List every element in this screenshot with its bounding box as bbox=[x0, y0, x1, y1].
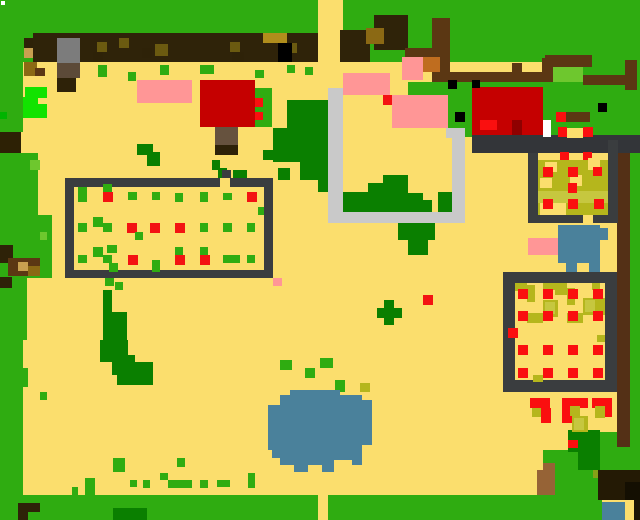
tree-branch bbox=[18, 262, 28, 271]
grass-tuft bbox=[320, 358, 333, 368]
grass-tuft bbox=[200, 480, 208, 488]
grass-tuft bbox=[217, 480, 230, 487]
grass-tuft bbox=[113, 458, 125, 472]
grass-tuft bbox=[168, 480, 192, 488]
grass-tuft bbox=[72, 487, 78, 495]
farmhouse-barn[interactable] bbox=[200, 80, 272, 156]
bush-large bbox=[103, 290, 112, 312]
hedge-gate[interactable] bbox=[553, 67, 583, 82]
grass-south bbox=[328, 495, 602, 520]
grass-south bbox=[0, 495, 318, 520]
log bbox=[18, 503, 40, 512]
tree-canopy bbox=[318, 162, 328, 192]
grass-tuft bbox=[143, 480, 150, 488]
pond[interactable] bbox=[268, 390, 372, 472]
crow bbox=[598, 103, 607, 112]
trellis-leaf bbox=[532, 408, 541, 417]
bright-grass-patch bbox=[23, 104, 47, 118]
tree-trunk bbox=[537, 470, 555, 495]
grass-tuft bbox=[305, 368, 315, 378]
southeast-structure bbox=[625, 482, 640, 500]
south-path[interactable] bbox=[315, 495, 331, 520]
roof-pink bbox=[137, 80, 192, 103]
water-trough bbox=[602, 502, 625, 520]
grass-tuft bbox=[177, 458, 185, 467]
east-fence bbox=[625, 60, 637, 90]
grass-tuft bbox=[248, 473, 255, 488]
burrow-hole bbox=[0, 132, 21, 153]
grass-tuft bbox=[105, 278, 114, 286]
trellis-leaf bbox=[595, 406, 605, 418]
bright-grass-dot bbox=[0, 112, 7, 119]
grass-east bbox=[630, 153, 640, 470]
tomato-trellis bbox=[530, 398, 550, 408]
dead-tree bbox=[366, 28, 384, 44]
east-fence-post bbox=[512, 63, 522, 72]
berry bbox=[583, 127, 593, 137]
berry-field-north[interactable] bbox=[528, 140, 618, 223]
southeast-structure bbox=[634, 500, 640, 520]
livestock-barn[interactable] bbox=[472, 87, 552, 137]
tomato-trellis bbox=[541, 408, 551, 423]
greenhouse[interactable] bbox=[328, 57, 465, 223]
tree-canopy bbox=[320, 112, 328, 143]
lime-tuft bbox=[40, 232, 47, 240]
bush-tuft bbox=[278, 168, 290, 180]
dropped-item bbox=[423, 295, 433, 305]
bush-large bbox=[103, 312, 127, 340]
bush bbox=[147, 152, 160, 166]
red-item bbox=[556, 112, 566, 122]
tree-branch bbox=[28, 266, 40, 276]
grass-dark-patch bbox=[113, 508, 147, 520]
grass-tuft bbox=[130, 480, 137, 487]
pink-mat bbox=[528, 238, 558, 255]
grass-tuft bbox=[115, 282, 123, 290]
grass-west bbox=[0, 340, 23, 495]
tree-branch bbox=[0, 277, 12, 288]
fenced-crop-field[interactable] bbox=[65, 170, 273, 278]
trellis-leaf bbox=[570, 406, 580, 416]
grass-west bbox=[0, 62, 23, 132]
grass-tuft bbox=[280, 360, 292, 370]
trellis-leaf bbox=[574, 418, 584, 430]
grass-tuft bbox=[160, 473, 168, 480]
farm-map bbox=[0, 0, 640, 520]
north-fence[interactable] bbox=[24, 33, 318, 78]
sprout-plus bbox=[377, 308, 402, 318]
bush-southeast bbox=[578, 452, 600, 470]
east-fence bbox=[545, 55, 592, 67]
grass-tuft bbox=[23, 368, 28, 387]
berry bbox=[568, 440, 578, 448]
lime-tuft bbox=[30, 160, 40, 170]
bush-large bbox=[117, 362, 153, 385]
pink-speck bbox=[273, 278, 282, 286]
grass-southeast bbox=[617, 447, 630, 470]
greenhouse-plants bbox=[408, 240, 428, 255]
sand-patch bbox=[567, 128, 583, 138]
greenhouse-plants bbox=[398, 223, 435, 240]
blue-pig[interactable] bbox=[558, 225, 608, 272]
east-road[interactable] bbox=[617, 153, 630, 447]
grass-tuft bbox=[85, 478, 95, 495]
berry-field-south[interactable] bbox=[503, 272, 617, 392]
log bbox=[18, 512, 28, 520]
grass-southeast bbox=[600, 432, 617, 450]
fence-piece bbox=[566, 112, 590, 122]
grass-tuft bbox=[40, 392, 47, 400]
north-path[interactable] bbox=[318, 0, 343, 62]
cursor-dot bbox=[1, 1, 5, 5]
berry bbox=[558, 127, 567, 137]
sand-patch bbox=[625, 500, 634, 520]
